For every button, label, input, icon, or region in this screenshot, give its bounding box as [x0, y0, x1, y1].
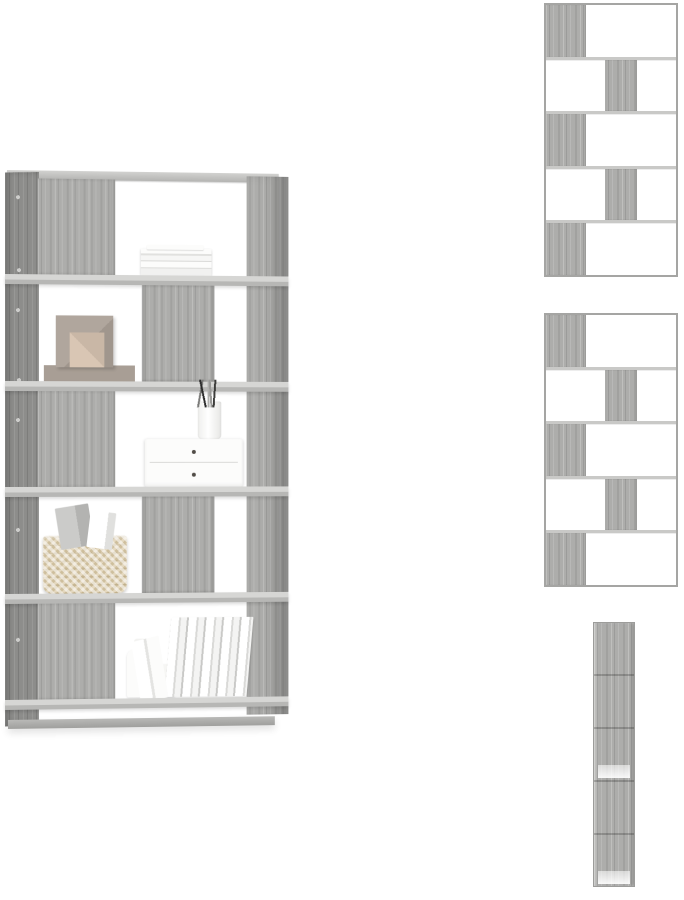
bookcase-left-side-panel — [5, 172, 39, 726]
shelf-tier-1 — [546, 5, 676, 60]
divider-panel — [546, 315, 586, 367]
divider-panel — [546, 424, 586, 476]
side-panel-section — [594, 835, 634, 886]
shelf-tier-4 — [546, 479, 676, 534]
divider-panel — [38, 178, 115, 275]
side-panel-section — [594, 676, 634, 729]
shelf-tier-3 — [546, 114, 676, 169]
side-panel-section — [594, 782, 634, 835]
thumbnail-side-view[interactable] — [594, 623, 634, 886]
drawer-organizer — [145, 439, 243, 487]
shelf-tier-4 — [546, 169, 676, 224]
shelf-tier-4 — [38, 497, 247, 604]
divider-panel — [605, 60, 638, 112]
wicker-basket — [43, 535, 127, 593]
divider-panel — [605, 169, 638, 221]
upright-books — [164, 617, 253, 697]
stack-of-flat-books — [141, 249, 212, 276]
side-panel-section — [594, 623, 634, 676]
bookcase-front — [38, 178, 247, 709]
product-image-gallery — [0, 0, 684, 900]
shelf-tier-2 — [38, 285, 247, 392]
bookcase-right-side-panel — [247, 176, 289, 714]
divider-panel — [605, 370, 638, 422]
pencil-cup — [198, 402, 221, 440]
shelf-tier-2 — [546, 60, 676, 115]
shelf-tier-5 — [546, 533, 676, 585]
divider-panel — [546, 533, 586, 585]
shelf-tier-5 — [38, 602, 247, 710]
divider-panel — [142, 286, 215, 382]
shelf-tier-1 — [38, 178, 247, 286]
divider-panel — [605, 479, 638, 531]
decorative-boxes — [44, 315, 135, 381]
shelf-tier-3 — [38, 391, 247, 497]
divider-panel — [546, 114, 586, 166]
divider-panel — [38, 391, 115, 487]
side-panel-section — [594, 729, 634, 782]
thumbnail-front-view-2[interactable] — [544, 313, 678, 587]
divider-panel — [38, 603, 115, 700]
shelf-tier-1 — [546, 315, 676, 370]
main-product-photo[interactable] — [5, 170, 288, 722]
divider-panel — [546, 5, 586, 57]
thumbnail-front-view-1[interactable] — [544, 3, 678, 277]
shelf-tier-2 — [546, 370, 676, 425]
shelf-tier-3 — [546, 424, 676, 479]
bookcase-base-board — [8, 716, 275, 729]
divider-panel — [142, 497, 215, 593]
shelf-tier-5 — [546, 223, 676, 275]
divider-panel — [546, 223, 586, 275]
